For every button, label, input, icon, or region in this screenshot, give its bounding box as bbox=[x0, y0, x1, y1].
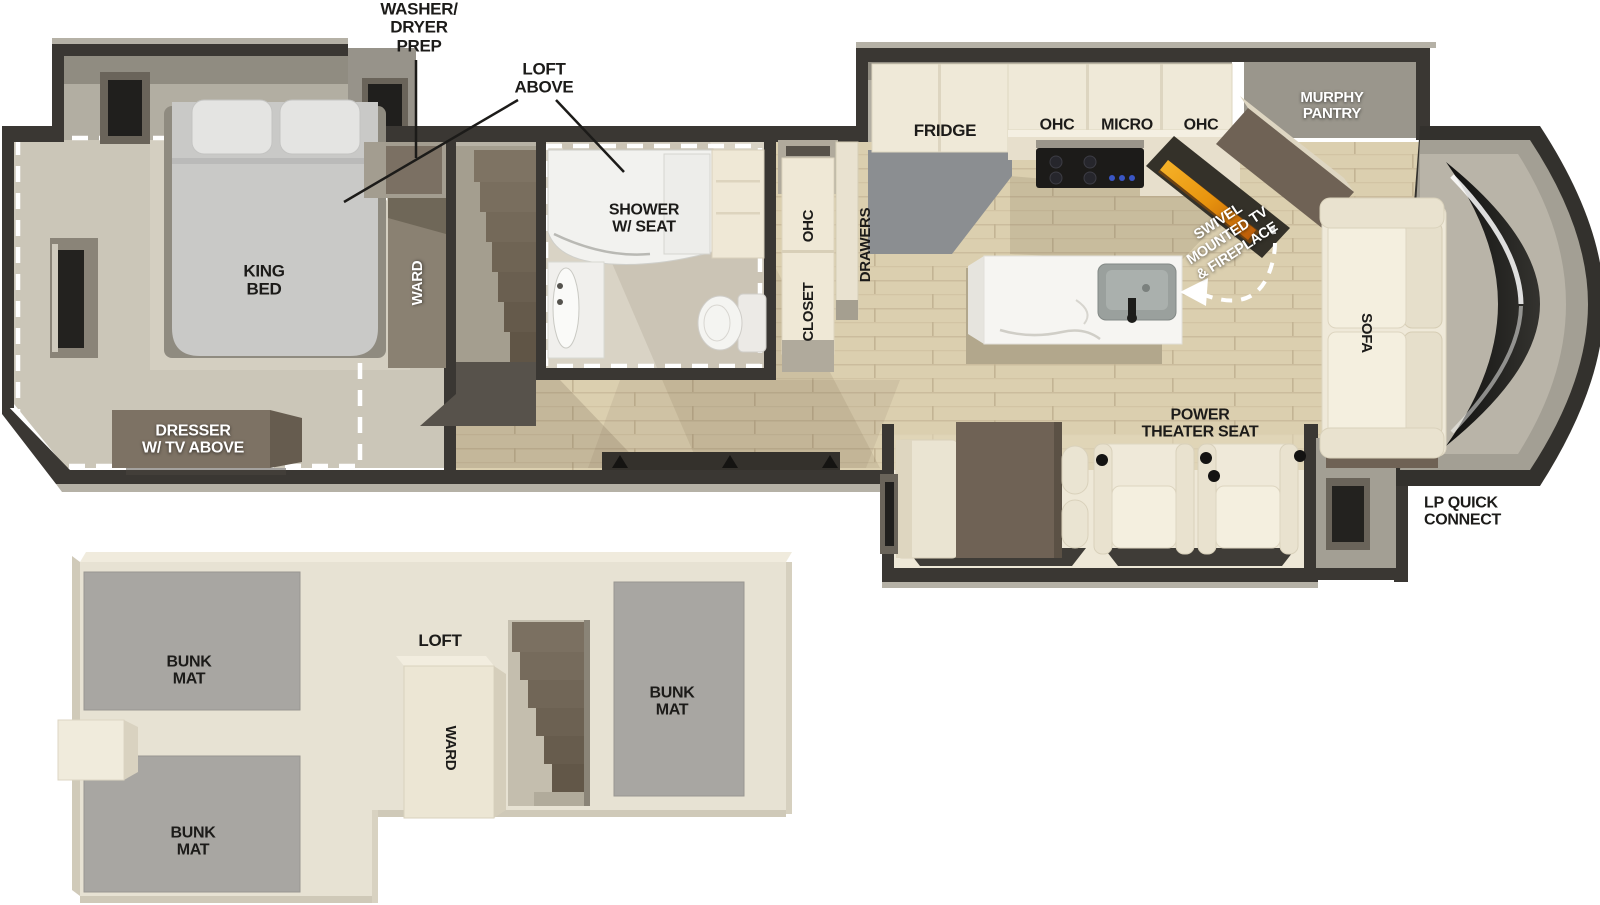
bunk-mat bbox=[84, 572, 300, 710]
entry-door bbox=[602, 452, 840, 470]
bunk-mat bbox=[614, 582, 744, 796]
toilet bbox=[698, 296, 742, 350]
vanity-sink bbox=[553, 268, 579, 348]
sofa-group bbox=[1320, 198, 1446, 468]
dinette-table bbox=[956, 422, 1062, 558]
overhead-cabinets bbox=[1008, 64, 1232, 130]
rv-floorplan: WASHER/ DRYER PREP LOFT ABOVE KING BED W… bbox=[0, 0, 1600, 905]
theater-seat bbox=[1094, 444, 1194, 554]
loft-step-cube bbox=[58, 720, 124, 780]
bedroom-window bbox=[58, 250, 84, 348]
slide-window bbox=[885, 482, 894, 546]
bed-slide-window bbox=[108, 80, 142, 136]
loft-plan bbox=[58, 552, 792, 903]
pillow bbox=[280, 100, 360, 154]
dinette-chair bbox=[1062, 446, 1088, 494]
dresser bbox=[112, 410, 270, 468]
dinette-chair bbox=[1062, 500, 1088, 548]
loft-ward bbox=[404, 666, 494, 818]
ohc-closet-cabinet bbox=[782, 158, 834, 354]
pillow bbox=[192, 100, 272, 154]
theater-slide bbox=[880, 422, 1306, 568]
theater-seat bbox=[1198, 444, 1298, 554]
bath-cabinet bbox=[712, 150, 764, 258]
shower-seat bbox=[664, 154, 710, 254]
drawers-cabinet bbox=[836, 142, 858, 314]
floorplan-drawing bbox=[0, 0, 1600, 905]
